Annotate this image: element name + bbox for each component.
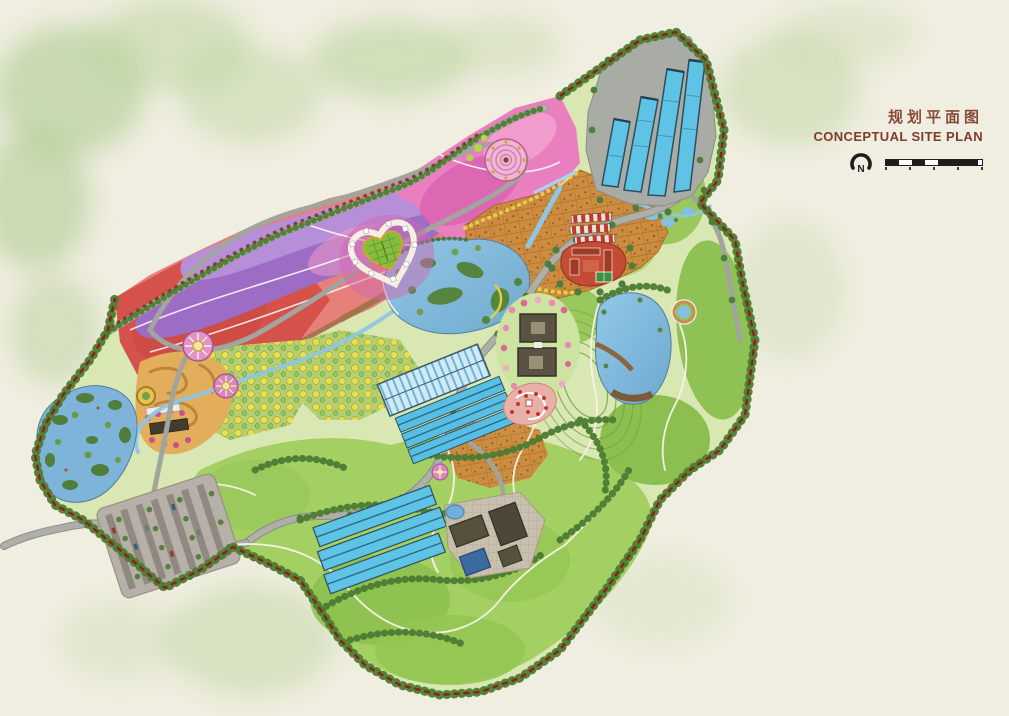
dark-courtyard-buildings xyxy=(496,293,580,397)
title-block: 规划平面图 CONCEPTUAL SITE PLAN N xyxy=(813,106,983,175)
plan-title-en: CONCEPTUAL SITE PLAN xyxy=(813,129,983,144)
north-arrow-icon: N xyxy=(849,153,873,175)
plan-title-zh: 规划平面图 xyxy=(813,106,983,127)
scale-bar xyxy=(885,159,983,170)
plaza-pond xyxy=(446,505,464,519)
service-plaza xyxy=(445,492,545,578)
cabin-rows xyxy=(569,212,615,245)
svg-text:N: N xyxy=(857,164,864,175)
